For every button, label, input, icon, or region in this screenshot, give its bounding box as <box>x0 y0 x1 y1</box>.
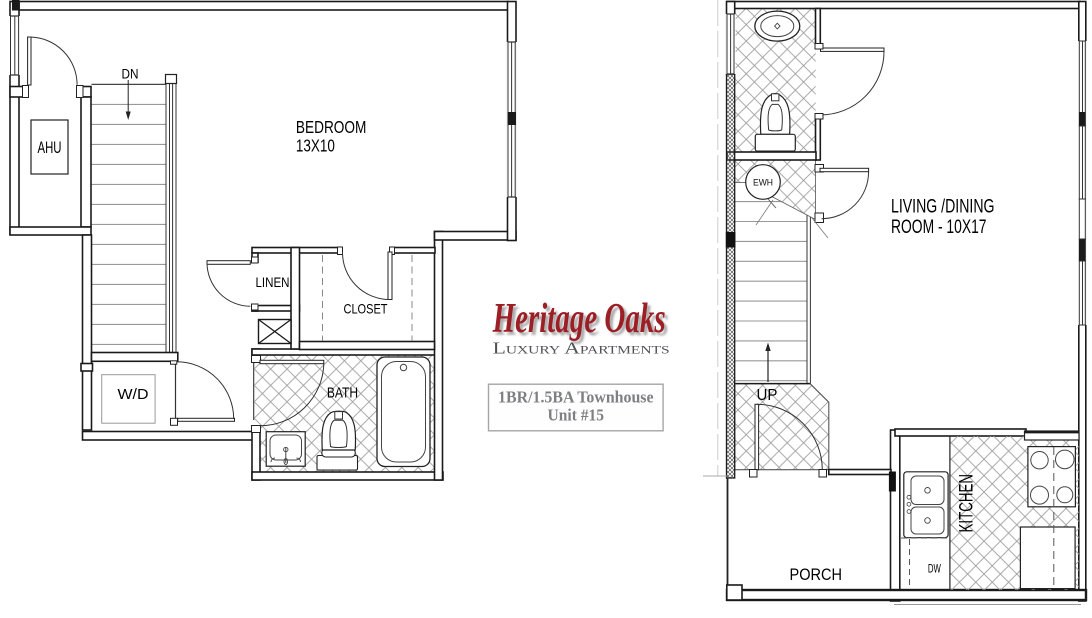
svg-text:LIVING /DINING: LIVING /DINING <box>891 196 995 218</box>
svg-text:LINEN: LINEN <box>256 274 290 290</box>
svg-text:CLOSET: CLOSET <box>344 300 388 316</box>
svg-text:Luxury Apartments: Luxury Apartments <box>493 339 670 358</box>
svg-text:UP: UP <box>757 387 778 404</box>
svg-text:EWH: EWH <box>753 178 773 189</box>
svg-text:DW: DW <box>928 562 941 576</box>
svg-text:AHU: AHU <box>38 139 62 157</box>
svg-text:1BR/1.5BA Townhouse: 1BR/1.5BA Townhouse <box>498 388 654 407</box>
svg-text:W/D: W/D <box>118 386 149 403</box>
svg-text:BATH: BATH <box>327 385 358 402</box>
svg-text:Unit #15: Unit #15 <box>548 405 605 424</box>
svg-text:KITCHEN: KITCHEN <box>956 474 977 533</box>
svg-text:13X10: 13X10 <box>296 135 335 155</box>
svg-text:PORCH: PORCH <box>790 565 843 584</box>
svg-text:ROOM - 10X17: ROOM - 10X17 <box>891 216 987 238</box>
svg-text:DN: DN <box>122 65 139 81</box>
svg-text:BEDROOM: BEDROOM <box>296 117 367 137</box>
svg-text:Heritage Oaks: Heritage Oaks <box>492 296 666 342</box>
